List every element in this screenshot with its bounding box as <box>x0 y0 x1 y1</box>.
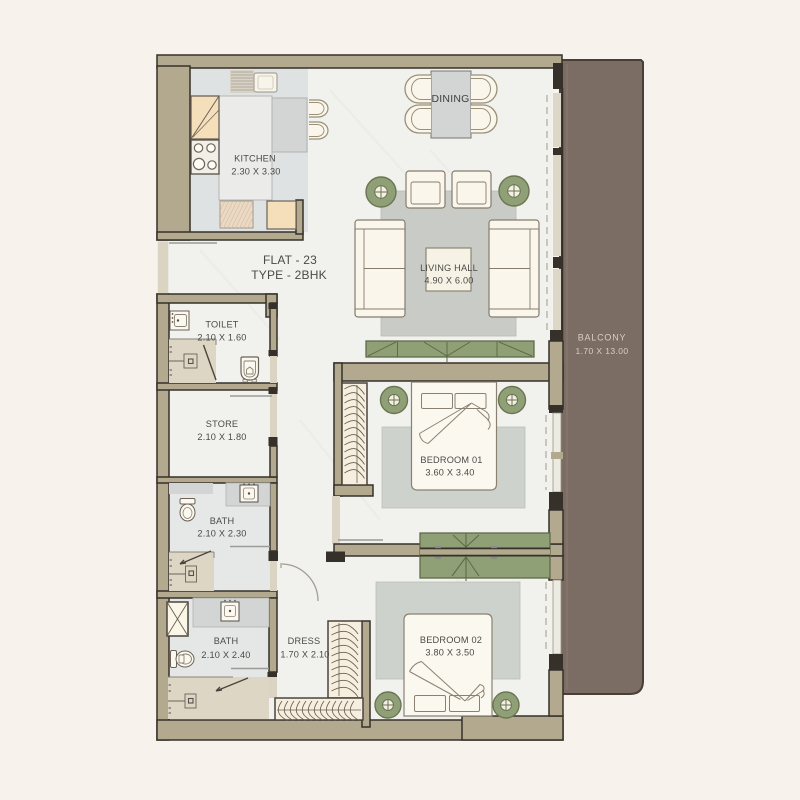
svg-text:TYPE - 2BHK: TYPE - 2BHK <box>251 268 327 282</box>
svg-text:2.10 X 2.40: 2.10 X 2.40 <box>201 650 250 660</box>
svg-text:2.10 X 1.80: 2.10 X 1.80 <box>197 432 246 442</box>
svg-text:4.90 X 6.00: 4.90 X 6.00 <box>424 276 473 286</box>
svg-text:TOILET: TOILET <box>205 320 238 330</box>
svg-text:STORE: STORE <box>206 419 238 429</box>
svg-text:3.60 X 3.40: 3.60 X 3.40 <box>425 468 474 478</box>
svg-text:FLAT - 23: FLAT - 23 <box>263 253 317 267</box>
svg-text:DINING: DINING <box>432 93 470 105</box>
svg-text:1.70 X 2.10: 1.70 X 2.10 <box>280 650 329 660</box>
svg-text:2.30 X 3.30: 2.30 X 3.30 <box>231 167 280 177</box>
svg-text:BEDROOM 02: BEDROOM 02 <box>420 635 482 645</box>
svg-text:BALCONY: BALCONY <box>578 333 627 343</box>
svg-text:BATH: BATH <box>210 516 235 526</box>
svg-text:BEDROOM 01: BEDROOM 01 <box>420 455 482 465</box>
svg-text:1.70 X 13.00: 1.70 X 13.00 <box>575 346 628 356</box>
svg-text:2.10 X 1.60: 2.10 X 1.60 <box>197 333 246 343</box>
svg-text:3.80 X 3.50: 3.80 X 3.50 <box>425 648 474 658</box>
svg-text:LIVING HALL: LIVING HALL <box>420 263 478 273</box>
svg-text:2.10 X 2.30: 2.10 X 2.30 <box>197 529 246 539</box>
svg-text:KITCHEN: KITCHEN <box>234 154 276 164</box>
svg-text:BATH: BATH <box>214 636 239 646</box>
svg-text:DRESS: DRESS <box>288 636 321 646</box>
